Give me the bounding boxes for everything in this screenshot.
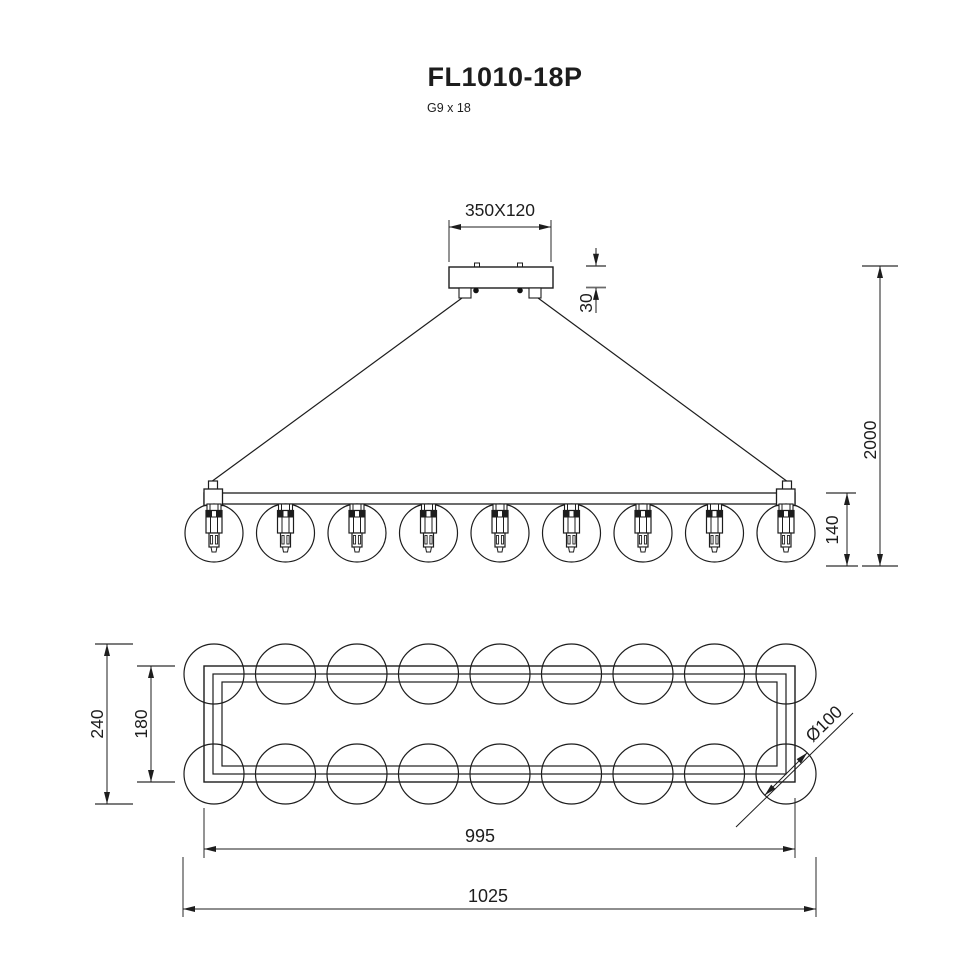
technical-drawing-page: FL1010-18P G9 x 18 350X120: [0, 0, 970, 970]
dim-canopy-height-label: 30: [576, 293, 596, 313]
arrow-upper: [786, 753, 807, 774]
lamp-spec-label: G9 x 18: [427, 101, 471, 115]
dim-frame-depth: 180: [131, 666, 175, 782]
globe-unit: [614, 504, 672, 562]
canopy-tab-right: [529, 288, 541, 298]
ceiling-canopy: [449, 263, 553, 298]
top-view: 240 180 Ø100 995 1025: [87, 644, 853, 917]
globe-unit: [471, 504, 529, 562]
globe-unit: [185, 504, 243, 562]
dim-canopy-size: 350X120: [449, 200, 551, 262]
frame-inner-edge: [222, 682, 777, 766]
cable-right: [538, 298, 788, 482]
globe-unit: [400, 504, 458, 562]
globe-column: [184, 644, 244, 804]
globe-unit: [257, 504, 315, 562]
globe-column: [470, 644, 530, 804]
canopy-dot-left: [473, 288, 479, 294]
dim-overall-length-label: 1025: [468, 886, 508, 906]
dim-overall-length: 1025: [183, 857, 816, 917]
bar-body: [204, 493, 795, 504]
dim-frame-length: 995: [204, 798, 795, 858]
dim-frame-length-label: 995: [465, 826, 495, 846]
globe-unit: [686, 504, 744, 562]
extension-lines: [449, 220, 551, 262]
globe-column: [256, 644, 316, 804]
tick-lines: [586, 266, 606, 288]
end-block-right: [777, 489, 796, 506]
frame-outer-edge: [204, 666, 795, 782]
top-globe-grid: [184, 644, 816, 804]
cable-left: [211, 298, 462, 482]
globe-unit: [328, 504, 386, 562]
front-view: 350X120 30: [185, 200, 898, 566]
dim-canopy-size-label: 350X120: [465, 200, 535, 220]
canopy-body: [449, 267, 553, 288]
arrow-lower: [765, 774, 786, 795]
frame-middle-edge: [213, 674, 786, 774]
canopy-tab-left: [459, 288, 471, 298]
end-block-left: [204, 489, 223, 506]
globe-unit: [543, 504, 601, 562]
globe-column: [685, 644, 745, 804]
cables: [211, 298, 788, 482]
frame-outline: [204, 666, 795, 782]
support-bar: [204, 481, 795, 506]
drawing-canvas: FL1010-18P G9 x 18 350X120: [0, 0, 970, 970]
dim-fixture-height: 140: [822, 493, 858, 566]
dim-globe-diameter-label: Ø100: [801, 701, 846, 745]
globe-column: [327, 644, 387, 804]
dim-overall-depth-label: 240: [87, 709, 107, 738]
canopy-dot-right: [517, 288, 523, 294]
dim-canopy-height: 30: [576, 248, 606, 313]
page-title: FL1010-18P: [427, 62, 582, 92]
dim-suspension-height: 2000: [860, 266, 898, 566]
globe-unit: [757, 504, 815, 562]
front-bulb-row: [185, 504, 815, 562]
dim-suspension-height-label: 2000: [860, 420, 880, 459]
globe-column: [613, 644, 673, 804]
globe-column: [542, 644, 602, 804]
dim-frame-depth-label: 180: [131, 709, 151, 738]
dim-overall-depth: 240: [87, 644, 133, 804]
globe-column: [399, 644, 459, 804]
dim-fixture-height-label: 140: [822, 515, 842, 544]
